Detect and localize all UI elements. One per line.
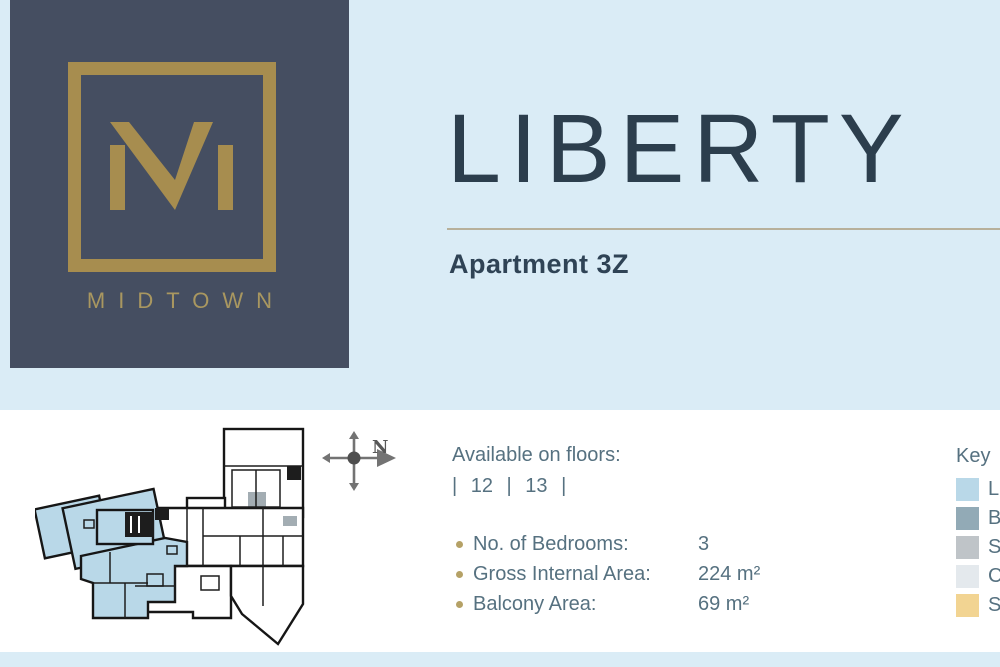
north-compass-icon: N xyxy=(322,431,398,499)
detail-row-gross-area: Gross Internal Area: 224 m² xyxy=(452,564,760,585)
apartment-title: LIBERTY xyxy=(447,100,913,197)
key-item: C xyxy=(956,565,1000,588)
key-label: L xyxy=(988,478,999,501)
detail-label: Balcony Area: xyxy=(473,594,698,615)
key-label: S xyxy=(988,594,1000,617)
midtown-logo: MIDTOWN xyxy=(10,0,349,368)
availability-block: Available on floors: | 12 | 13 | xyxy=(452,444,621,498)
apartment-unit: Apartment 3Z xyxy=(449,249,629,280)
detail-value: 69 m² xyxy=(698,594,749,615)
detail-label: Gross Internal Area: xyxy=(473,564,698,585)
key-swatch xyxy=(956,507,979,530)
detail-label: No. of Bedrooms: xyxy=(473,534,698,555)
bullet-icon xyxy=(456,601,463,608)
key-title: Key xyxy=(956,444,1000,468)
bullet-icon xyxy=(456,571,463,578)
key-label: B xyxy=(988,507,1000,530)
key-item: S xyxy=(956,536,1000,559)
bullet-icon xyxy=(456,541,463,548)
key-swatch xyxy=(956,536,979,559)
key-item: S xyxy=(956,594,1000,617)
key-label: C xyxy=(988,565,1000,588)
brochure-page: MIDTOWN LIBERTY Apartment 3Z xyxy=(0,0,1000,667)
detail-row-balcony-area: Balcony Area: 69 m² xyxy=(452,594,760,615)
title-divider xyxy=(447,228,1000,230)
apartment-details: No. of Bedrooms: 3 Gross Internal Area: … xyxy=(452,534,760,624)
north-label: N xyxy=(372,437,388,458)
availability-floors: | 12 | 13 | xyxy=(452,475,621,498)
detail-value: 224 m² xyxy=(698,564,760,585)
detail-value: 3 xyxy=(698,534,709,555)
key-item: L xyxy=(956,478,1000,501)
key-swatch xyxy=(956,565,979,588)
detail-row-bedrooms: No. of Bedrooms: 3 xyxy=(452,534,760,555)
key-label: S xyxy=(988,536,1000,559)
midtown-monogram-icon xyxy=(110,122,233,210)
plan-key-legend: Key L B S C S xyxy=(956,444,1000,623)
key-swatch xyxy=(956,594,979,617)
key-swatch xyxy=(956,478,979,501)
brand-name: MIDTOWN xyxy=(10,288,349,314)
floor-plan xyxy=(35,426,307,650)
availability-label: Available on floors: xyxy=(452,444,621,467)
footer-band xyxy=(0,652,1000,667)
key-item: B xyxy=(956,507,1000,530)
